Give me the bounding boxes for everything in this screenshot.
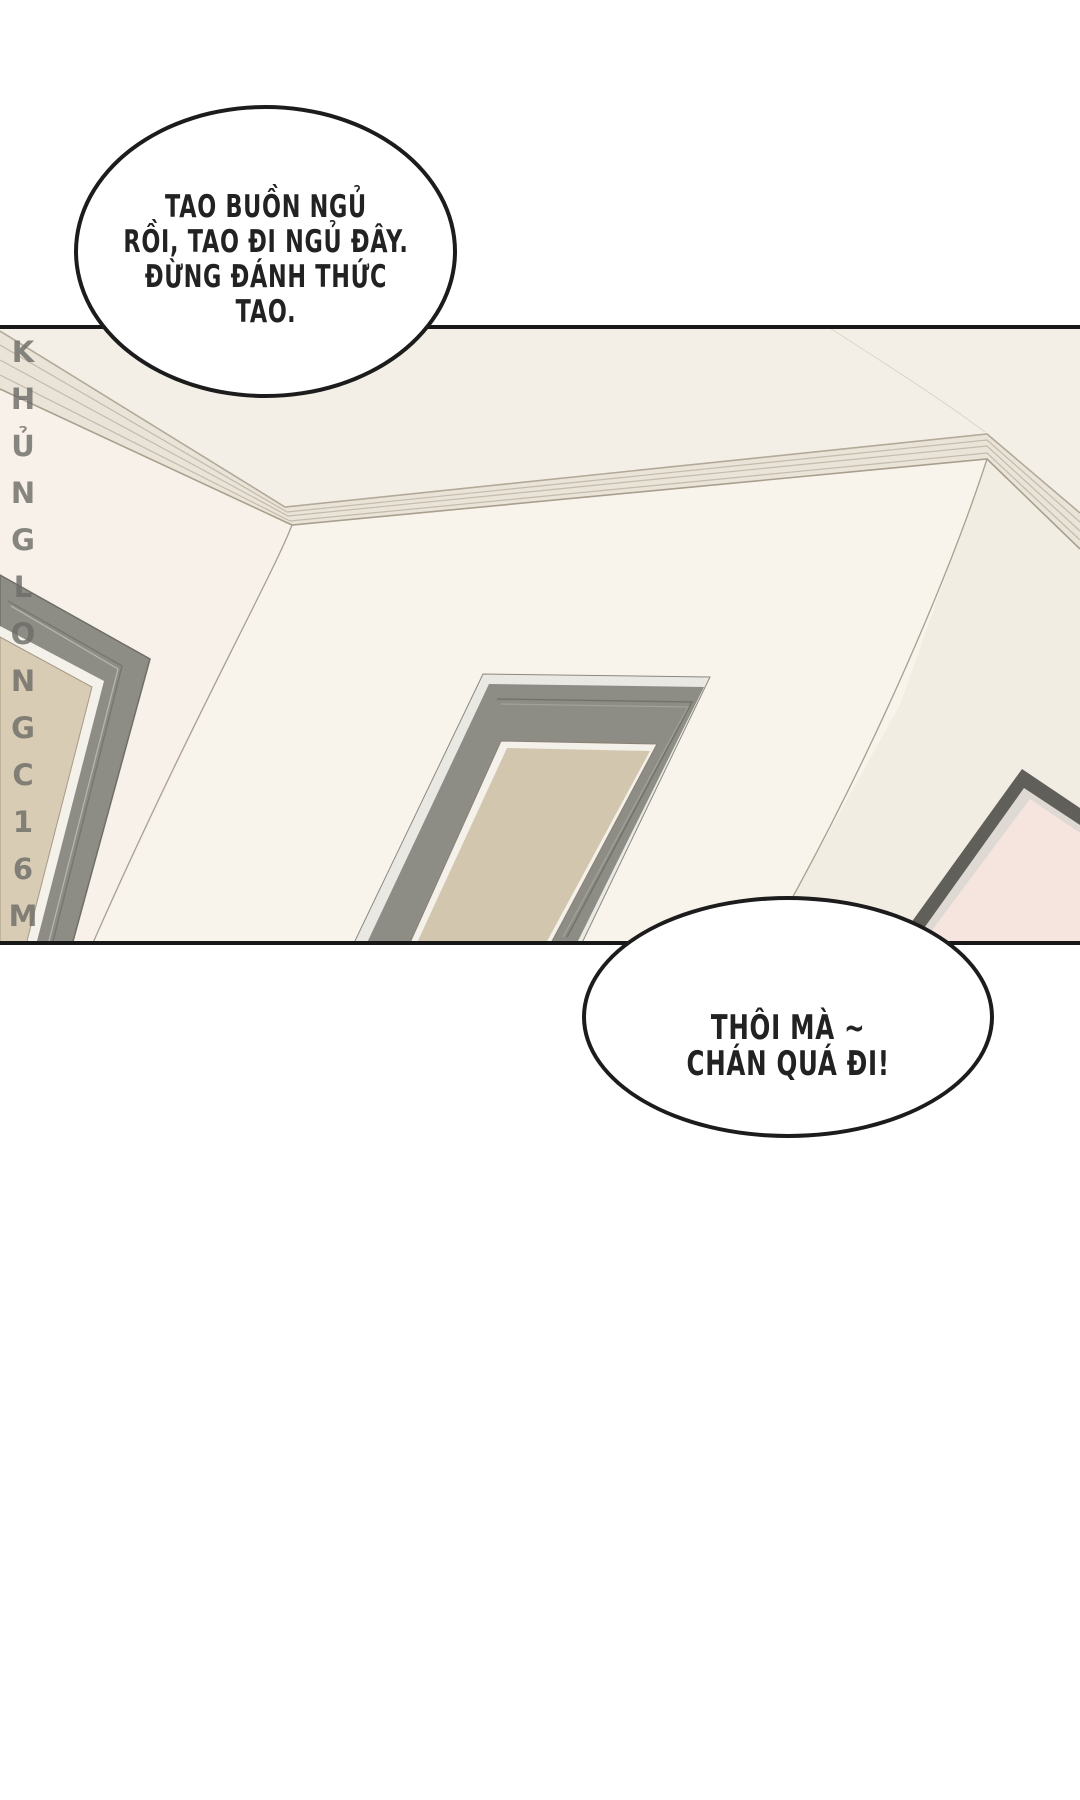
speech-bubble-top-text: TAO BUỒN NGỦ RỒI, TAO ĐI NGỦ ĐÂY. ĐỪNG Đ… xyxy=(123,190,408,330)
speech-bubble-bottom: THÔI MÀ ~ CHÁN QUÁ ĐI! xyxy=(582,896,994,1138)
speech-line: TAO. xyxy=(235,295,296,330)
comic-page: KHỦNGLONGC16M TAO BUỒN NGỦ RỒI, TAO ĐI N… xyxy=(0,0,1080,1800)
speech-line: THÔI MÀ ~ xyxy=(711,1010,865,1046)
watermark-text: KHỦNGLONGC16M xyxy=(6,335,40,946)
speech-line: ĐỪNG ĐÁNH THỨC xyxy=(144,260,386,295)
speech-bubble-bottom-text: THÔI MÀ ~ CHÁN QUÁ ĐI! xyxy=(686,1010,889,1082)
speech-line: TAO BUỒN NGỦ xyxy=(165,190,367,225)
room-scene-panel xyxy=(0,325,1080,945)
speech-line: RỒI, TAO ĐI NGỦ ĐÂY. xyxy=(123,225,408,260)
speech-line: CHÁN QUÁ ĐI! xyxy=(686,1046,889,1082)
speech-bubble-top: TAO BUỒN NGỦ RỒI, TAO ĐI NGỦ ĐÂY. ĐỪNG Đ… xyxy=(74,105,457,398)
